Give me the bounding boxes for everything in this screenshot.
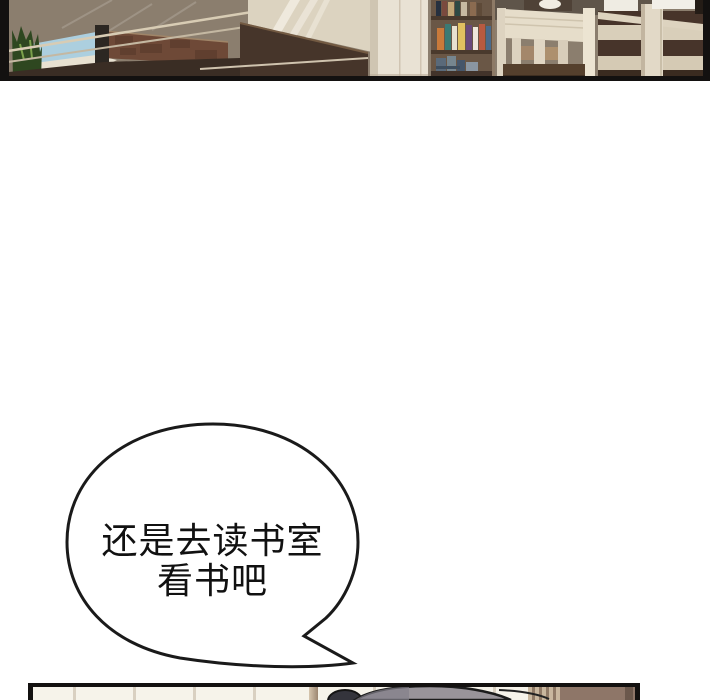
books-middle-row [437,23,491,50]
white-gap-left [604,0,638,11]
speech-line-2: 看书吧 [90,561,335,601]
books-top-row [436,1,482,16]
head-top-art [33,687,635,700]
library-scene-art [0,0,710,81]
panel-library-scene [0,0,710,81]
speech-line-1: 还是去读书室 [90,521,335,561]
bookshelf [431,0,495,77]
panel-room-scene [28,683,640,700]
speech-bubble-text: 还是去读书室 看书吧 [90,521,335,601]
comic-page: 还是去读书室 看书吧 [0,0,720,700]
column [370,0,428,79]
bench-right [598,0,710,81]
